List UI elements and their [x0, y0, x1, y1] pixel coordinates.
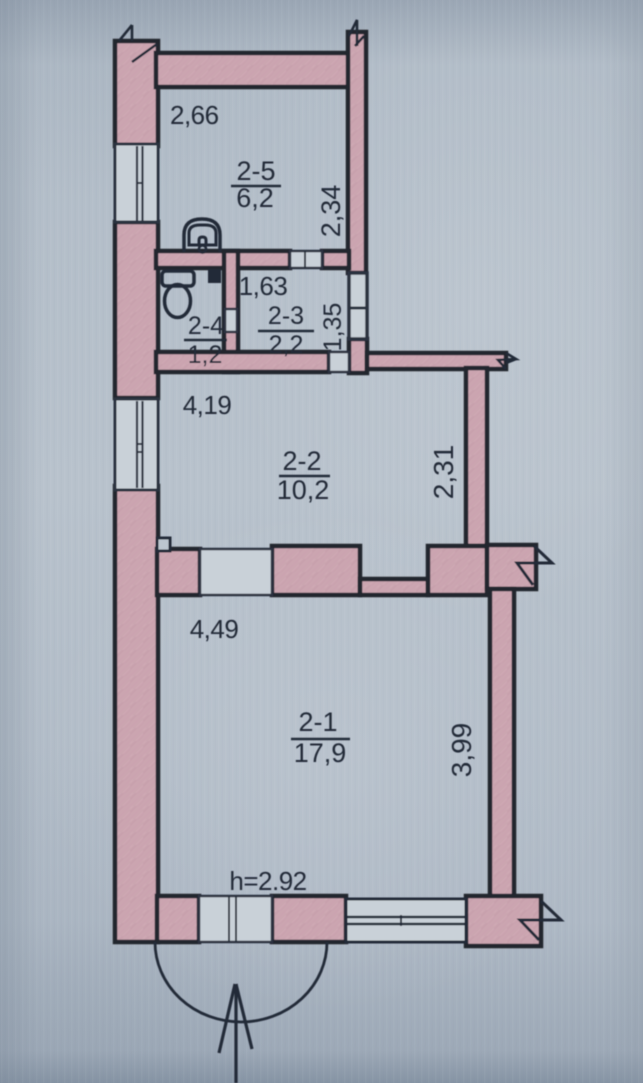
svg-text:2-1: 2-1: [298, 707, 337, 737]
svg-text:6,2: 6,2: [236, 183, 274, 213]
svg-text:1,2: 1,2: [188, 341, 223, 369]
svg-text:4,19: 4,19: [183, 390, 232, 420]
svg-text:1,63: 1,63: [239, 271, 288, 301]
svg-text:2-4: 2-4: [188, 312, 224, 340]
svg-text:2,31: 2,31: [428, 445, 459, 500]
svg-text:10,2: 10,2: [277, 475, 330, 505]
svg-text:2-2: 2-2: [282, 446, 321, 476]
svg-text:2,2: 2,2: [269, 331, 304, 359]
svg-text:3,99: 3,99: [446, 723, 477, 778]
svg-text:2-5: 2-5: [236, 156, 275, 186]
svg-text:17,9: 17,9: [294, 738, 347, 768]
svg-text:h=2.92: h=2.92: [229, 866, 306, 896]
svg-text:4,49: 4,49: [190, 614, 239, 644]
svg-text:2,34: 2,34: [316, 185, 346, 238]
svg-text:1,35: 1,35: [319, 303, 347, 352]
svg-text:2-3: 2-3: [268, 302, 304, 330]
svg-text:2,66: 2,66: [170, 100, 219, 130]
